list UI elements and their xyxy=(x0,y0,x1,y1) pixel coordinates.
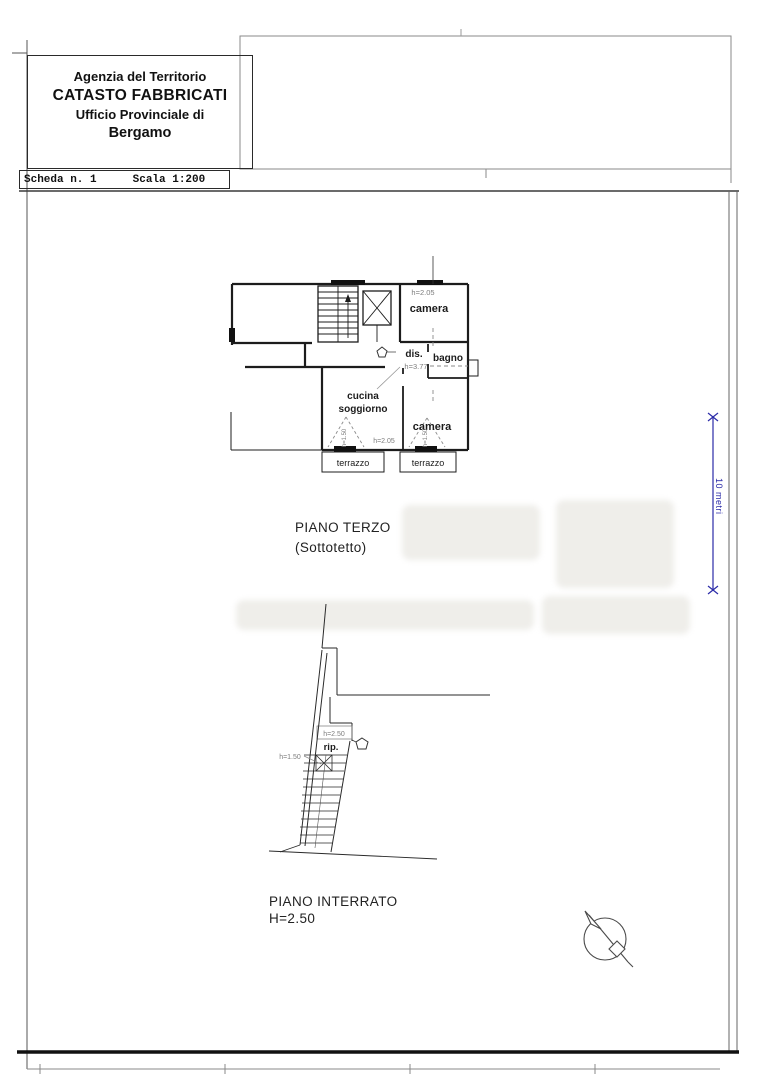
basement-outline xyxy=(322,604,490,741)
right-window-outset xyxy=(468,360,478,376)
height-falda-left: h=1.50 xyxy=(342,428,348,447)
room-label-soggiorno: soggiorno xyxy=(339,404,388,415)
room-label-cucina: cucina xyxy=(347,391,379,402)
scheda-number: Scheda n. 1 xyxy=(24,174,97,186)
height-falda-right: h=1.50 xyxy=(423,428,429,447)
height-gronda: h=2.05 xyxy=(373,438,395,445)
piano-terzo-title-block: PIANO TERZO (Sottotetto) xyxy=(295,518,391,558)
room-label-camera-top: camera xyxy=(410,303,449,315)
height-camera-top: h=2.05 xyxy=(411,288,434,297)
height-colmo: h=3.77 xyxy=(404,362,427,371)
header-agency: Agenzia del Territorio xyxy=(28,67,252,86)
ground-line xyxy=(269,845,437,859)
scale-dimension: 10 metri xyxy=(708,413,724,594)
piano-terzo-subtitle: (Sottotetto) xyxy=(295,538,391,558)
height-under-stairs: h=1.50 xyxy=(279,754,301,761)
room-label-dis: dis. xyxy=(405,349,422,360)
room-label-terrazzo-right: terrazzo xyxy=(412,458,445,468)
height-leader xyxy=(377,367,400,389)
piano-terzo-plan: camera dis. bagno cucina soggiorno camer… xyxy=(229,256,478,472)
adjacent-outline xyxy=(231,412,322,450)
roof-height-dashes xyxy=(430,328,468,404)
room-label-rip: rip. xyxy=(324,742,339,753)
height-rip: h=2.50 xyxy=(323,731,345,738)
room-label-bagno: bagno xyxy=(433,353,463,364)
scala-label: Scala 1:200 xyxy=(133,174,206,186)
scheda-bar: Scheda n. 1 Scala 1:200 xyxy=(19,170,230,189)
header-catasto: CATASTO FABBRICATI xyxy=(28,86,252,105)
piano-interrato-plan: h=2.50 rip. h=1.50 xyxy=(269,604,490,859)
elevator-shaft xyxy=(363,291,391,342)
north-compass-icon xyxy=(584,911,633,967)
cadastral-sheet: 10 metri xyxy=(0,0,763,1079)
piano-interrato-title: PIANO INTERRATO xyxy=(269,893,398,910)
header-box: Agenzia del Territorio CATASTO FABBRICAT… xyxy=(27,55,253,169)
scale-dimension-label: 10 metri xyxy=(714,478,724,515)
flue-pentagon-icon xyxy=(352,738,368,749)
room-label-camera-bottom: camera xyxy=(413,421,452,433)
piano-terzo-title: PIANO TERZO xyxy=(295,518,391,538)
piano-interrato-title-block: PIANO INTERRATO H=2.50 xyxy=(269,893,398,927)
room-label-terrazzo-left: terrazzo xyxy=(337,458,370,468)
piano-interrato-height: H=2.50 xyxy=(269,910,398,927)
flue-pentagon-icon xyxy=(377,347,396,357)
header-office: Ufficio Provinciale di xyxy=(28,105,252,124)
staircase xyxy=(318,286,358,342)
header-city: Bergamo xyxy=(28,124,252,143)
